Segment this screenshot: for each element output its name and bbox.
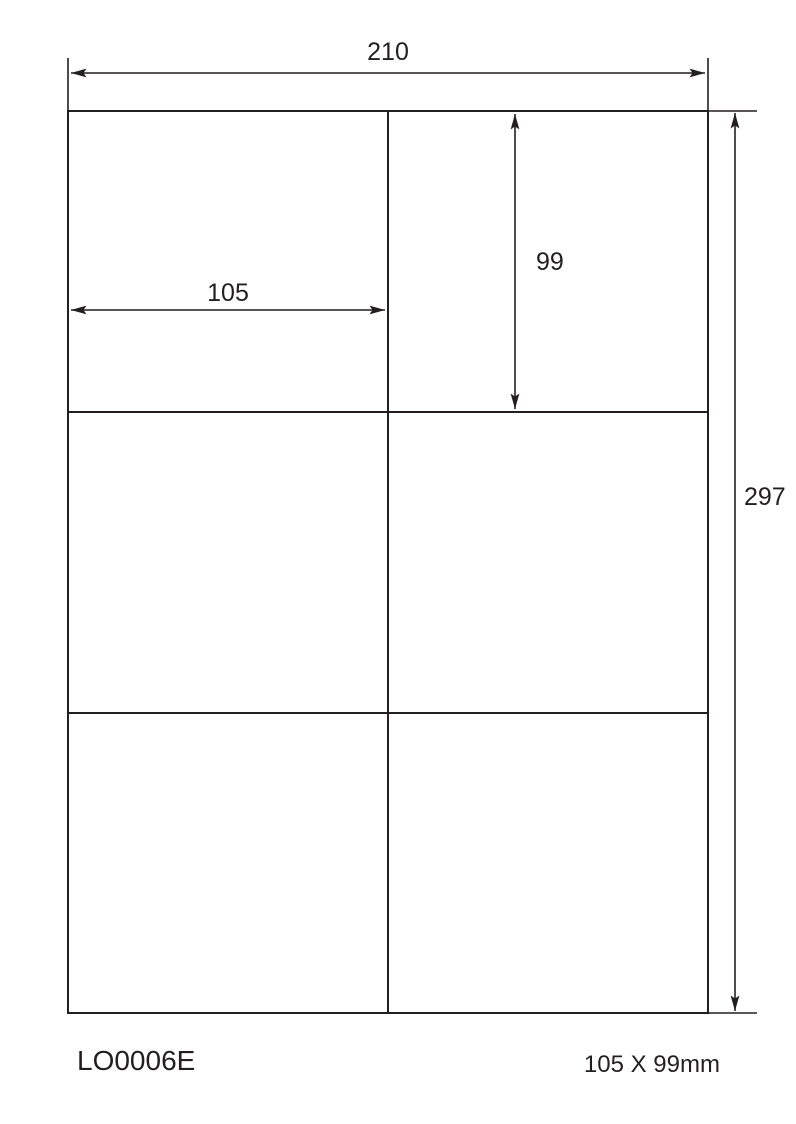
label-size-text: 105 X 99mm (400, 1053, 720, 1077)
label-width-label: 105 (68, 281, 388, 306)
label-height-label: 99 (536, 250, 564, 275)
sheet-width-label: 210 (68, 40, 708, 65)
dimension-linework (0, 0, 796, 1124)
product-code: LO0006E (77, 1047, 195, 1075)
sheet-height-label: 297 (744, 485, 786, 510)
label-sheet-diagram: 210 297 105 99 LO0006E 105 X 99mm (0, 0, 796, 1124)
